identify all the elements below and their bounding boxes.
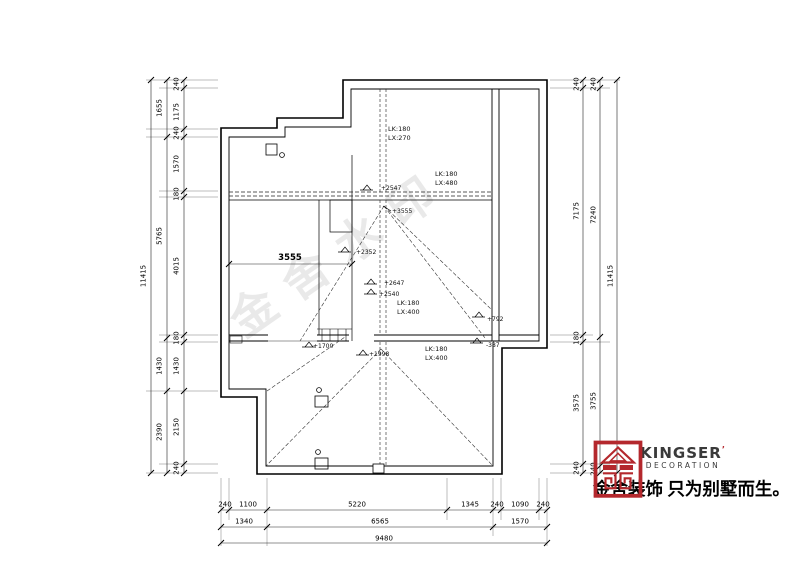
level-label: +792 bbox=[487, 317, 503, 323]
dim-left-inner: 240 bbox=[174, 77, 181, 90]
outer-wall bbox=[221, 80, 547, 474]
interior-dim-label: 3555 bbox=[278, 253, 302, 263]
dim-left-inner: 1430 bbox=[174, 357, 181, 375]
company-logo: KINGSER’ DECORATION 金舍装饰 只为别墅而生。 bbox=[593, 440, 773, 501]
beam-label: LX:400 bbox=[425, 355, 448, 362]
stairwell bbox=[230, 155, 352, 343]
beam-label: LK:180 bbox=[388, 126, 410, 133]
dim-left-mid: 1655 bbox=[157, 99, 164, 117]
dim-right-inner: 240 bbox=[574, 461, 581, 474]
beam-label: LX:400 bbox=[397, 309, 420, 316]
level-label: +2540 bbox=[379, 292, 399, 298]
dim-right-inner: 240 bbox=[574, 77, 581, 90]
kingser-logo-icon bbox=[593, 440, 643, 500]
dim-left-inner: 1570 bbox=[174, 155, 181, 173]
corridor-wall bbox=[492, 89, 539, 341]
dim-bottom-r2: 6565 bbox=[371, 519, 389, 526]
dim-left-mid: 5765 bbox=[157, 227, 164, 245]
dim-right-mid: 240 bbox=[591, 77, 598, 90]
dim-right-outer: 11415 bbox=[608, 265, 615, 287]
level-label: +3555 bbox=[392, 209, 412, 215]
dim-left-inner: 180 bbox=[174, 187, 181, 200]
beam-label: LX:480 bbox=[435, 180, 458, 187]
extension-lines bbox=[146, 80, 620, 546]
dim-bottom-r2: 1570 bbox=[511, 519, 529, 526]
level-label: +1700 bbox=[313, 344, 333, 350]
beam-label: LK:180 bbox=[397, 300, 419, 307]
dim-left-inner: 2150 bbox=[174, 418, 181, 436]
dim-bottom-r1: 5220 bbox=[348, 502, 366, 509]
level-label: +2547 bbox=[381, 186, 401, 192]
beam-label: LX:270 bbox=[388, 135, 411, 142]
dim-left-inner: 240 bbox=[174, 126, 181, 139]
floor-plan-sheet: 金舍水印 bbox=[0, 0, 800, 566]
dim-left-inner: 1175 bbox=[174, 103, 181, 121]
interior-wall bbox=[229, 335, 492, 341]
beam-lines bbox=[229, 89, 492, 466]
level-label: +1998 bbox=[369, 352, 389, 358]
roof-diagonals bbox=[266, 206, 493, 466]
level-label: -387 bbox=[486, 343, 500, 349]
dim-bottom-r1: 240 bbox=[490, 502, 503, 509]
dim-left-outer: 11415 bbox=[141, 265, 148, 287]
dimension-ticks bbox=[148, 77, 620, 546]
dim-right-inner: 180 bbox=[574, 331, 581, 344]
dim-right-inner: 7175 bbox=[574, 202, 581, 220]
dim-bottom-r3: 9480 bbox=[375, 536, 393, 543]
dim-bottom-r1: 240 bbox=[536, 502, 549, 509]
fixture-icons bbox=[266, 144, 384, 473]
dim-left-inner: 240 bbox=[174, 461, 181, 474]
dim-left-inner: 4015 bbox=[174, 257, 181, 275]
beam-label: LK:180 bbox=[435, 171, 457, 178]
level-label: +2647 bbox=[384, 281, 404, 287]
dim-left-inner: 180 bbox=[174, 331, 181, 344]
dim-bottom-r1: 1345 bbox=[461, 502, 479, 509]
brand-mark: ’ bbox=[722, 445, 726, 454]
dim-bottom-r1: 1100 bbox=[239, 502, 257, 509]
dim-right-mid: 7240 bbox=[591, 206, 598, 224]
dim-bottom-r1: 240 bbox=[218, 502, 231, 509]
dim-bottom-r1: 1090 bbox=[511, 502, 529, 509]
beam-label: LK:180 bbox=[425, 346, 447, 353]
dim-left-mid: 1430 bbox=[157, 357, 164, 375]
level-label: +2352 bbox=[356, 250, 376, 256]
dim-left-mid: 2390 bbox=[157, 423, 164, 441]
dim-right-inner: 3575 bbox=[574, 394, 581, 412]
dim-right-mid: 3755 bbox=[591, 392, 598, 410]
inner-wall bbox=[229, 89, 539, 466]
dim-bottom-r2: 1340 bbox=[235, 519, 253, 526]
